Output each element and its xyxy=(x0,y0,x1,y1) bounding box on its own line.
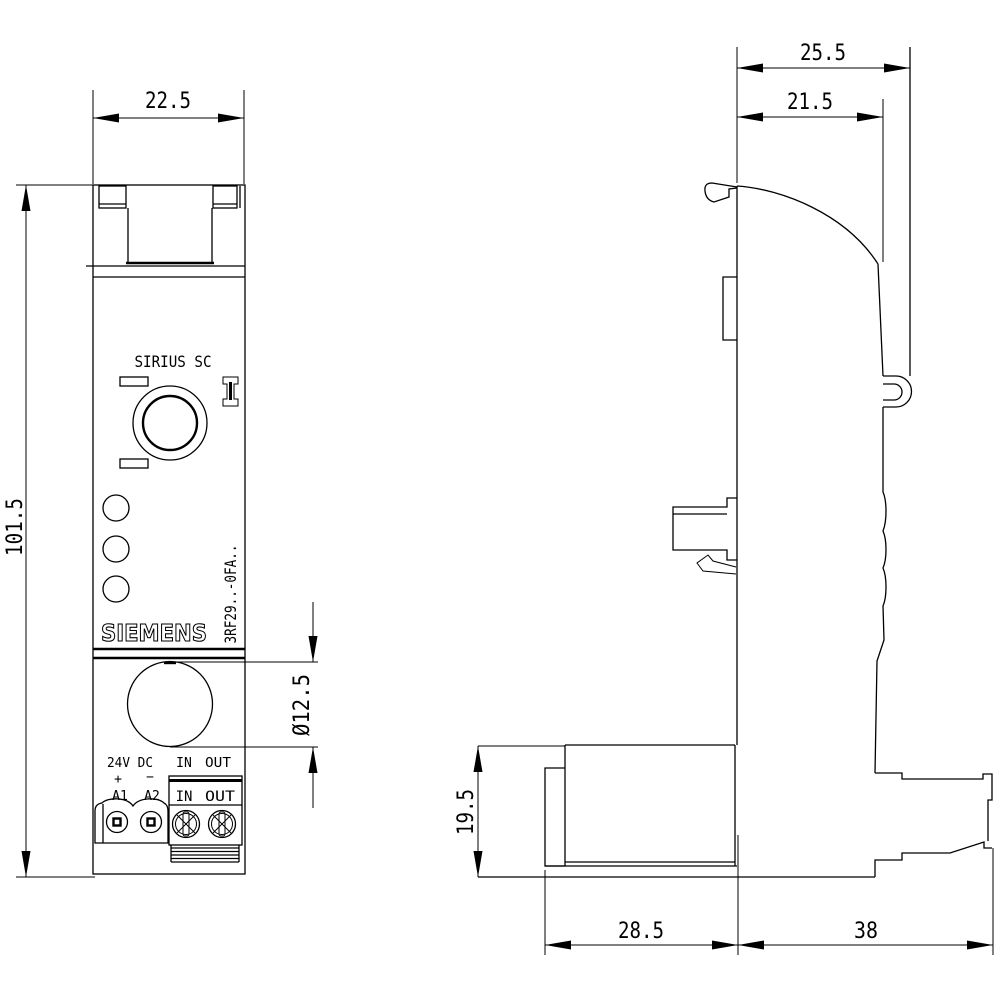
led-indicator xyxy=(103,536,129,562)
status-leds xyxy=(103,495,129,602)
out-block-label: OUT xyxy=(205,789,236,805)
terminal-a1 xyxy=(107,812,128,833)
dim-depth-front: 28.5 xyxy=(545,835,738,955)
front-bump xyxy=(723,277,737,340)
separator-band xyxy=(93,649,245,658)
potentiometer-knob xyxy=(128,662,213,747)
setting-knob xyxy=(120,377,238,468)
rear-hook-clip xyxy=(883,376,912,407)
dim-depth-rear-value: 38 xyxy=(854,919,878,944)
load-terminal-block: IN OUT xyxy=(169,776,242,862)
out-label: OUT xyxy=(205,756,231,771)
brand-label: SIEMENS xyxy=(101,621,207,647)
dim-overall-width: 22.5 xyxy=(93,89,244,184)
minus-label: − xyxy=(146,770,154,785)
led-indicator xyxy=(103,576,129,602)
terminal-a2 xyxy=(141,812,162,833)
dim-terminal-height: 19.5 xyxy=(454,746,565,877)
a1-label: A1 xyxy=(112,789,128,804)
dim-depth-overall-value: 25.5 xyxy=(800,41,846,66)
in-label: IN xyxy=(176,756,192,771)
side-view xyxy=(478,47,992,877)
plus-label: + xyxy=(114,772,122,787)
led-indicator xyxy=(103,495,129,521)
dim-depth-body: 21.5 xyxy=(737,90,883,262)
side-connector xyxy=(673,498,737,574)
dim-depth-front-value: 28.5 xyxy=(618,919,664,944)
in-block-label: IN xyxy=(176,789,193,805)
din-release-lever xyxy=(705,183,737,202)
front-view: SIRIUS SC 3RF29..-0FA.. SIEMENS xyxy=(86,185,245,874)
connector-latch xyxy=(697,555,736,574)
screw-terminal-in xyxy=(173,811,200,838)
side-rear-edge-upper xyxy=(878,264,883,376)
screw-terminal-out xyxy=(209,811,236,838)
a2-label: A2 xyxy=(144,789,160,804)
dim-terminal-height-value: 19.5 xyxy=(454,789,479,835)
dim-overall-height: 101.5 xyxy=(3,185,100,877)
dimensional-drawing: SIRIUS SC 3RF29..-0FA.. SIEMENS xyxy=(0,0,1000,1000)
dim-overall-height-value: 101.5 xyxy=(3,498,28,556)
supply-label: 24V DC xyxy=(107,756,153,771)
model-number-label: 3RF29..-0FA.. xyxy=(221,545,240,644)
side-terminal-block xyxy=(545,745,737,866)
dim-depth-rear: 38 xyxy=(738,848,993,955)
latch-icon xyxy=(223,377,238,406)
dim-overall-width-value: 22.5 xyxy=(145,89,191,114)
side-top-curve xyxy=(737,186,878,264)
side-rear-edge-lower xyxy=(875,407,886,773)
dim-knob-diameter-value: Ø12.5 xyxy=(290,674,315,736)
product-line-label: SIRIUS SC xyxy=(135,352,212,371)
din-slot xyxy=(86,186,245,277)
din-rail-profile xyxy=(875,773,992,877)
terminal-hatch xyxy=(171,845,239,862)
control-connector xyxy=(95,799,168,843)
dim-depth-body-value: 21.5 xyxy=(787,90,833,115)
